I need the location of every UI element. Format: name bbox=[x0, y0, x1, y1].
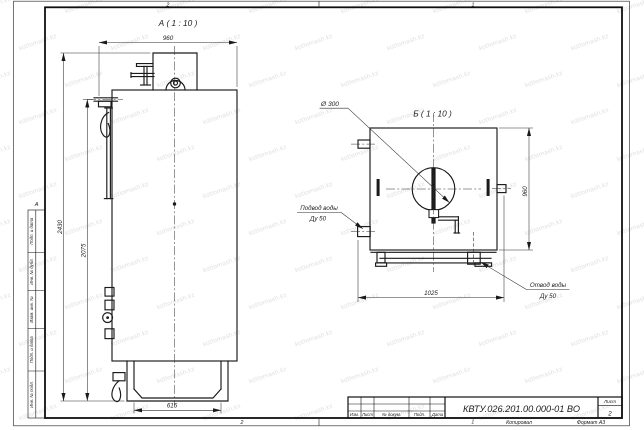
view-a-side-view: А ( 1 : 10 ) bbox=[57, 18, 237, 414]
inlet-label: Подвод воды bbox=[300, 205, 338, 212]
view-a-title: А ( 1 : 10 ) bbox=[158, 18, 198, 28]
drawing-sheet: { "sheet": { "zones": { "top_left": "2",… bbox=[0, 0, 644, 430]
sheet-frame: 2 1 2 1 А Копировал Формат А3 bbox=[14, 1, 630, 426]
zone-letter-left: А bbox=[34, 202, 39, 208]
slot-right bbox=[487, 179, 490, 196]
outlet-size: Ду 50 bbox=[539, 293, 557, 300]
outlet-callout: Отвод воды Ду 50 bbox=[481, 262, 570, 300]
lifting-eye-ring bbox=[171, 78, 181, 88]
view-b-rear-view: Б ( 1 : 10 ) bbox=[297, 101, 569, 302]
titleblock-col-list: Лист bbox=[361, 412, 373, 417]
dim-text-615: 615 bbox=[167, 403, 178, 410]
dim-text-2075: 2075 bbox=[81, 243, 88, 258]
diameter-label: Ø 300 bbox=[320, 101, 339, 108]
document-number: КВТУ.026.201.00.000-01 ВО bbox=[463, 404, 580, 414]
titleblock-col-podp: Подп. bbox=[414, 412, 425, 417]
slot-left bbox=[377, 179, 380, 196]
crank-handle bbox=[439, 217, 460, 233]
sheet-number: 2 bbox=[607, 410, 612, 417]
titleblock-col-izm: Изм. bbox=[350, 412, 359, 417]
damper-handle bbox=[131, 64, 154, 85]
title-block: Изм. Лист № докум. Подп. Дата КВТУ.026.2… bbox=[348, 397, 622, 418]
side-stamp-label: Инв. № дубл. bbox=[29, 258, 34, 284]
zone-number-bottom-left: 2 bbox=[240, 420, 244, 426]
view-b-title: Б ( 1 : 10 ) bbox=[413, 109, 452, 119]
damper-clamp bbox=[429, 210, 439, 218]
inlet-callout: Подвод воды Ду 50 bbox=[297, 205, 363, 229]
dimension-960-top: 960 bbox=[99, 35, 237, 96]
dimension-2075: 2075 bbox=[81, 99, 93, 401]
dim-text-960-b: 960 bbox=[522, 186, 529, 197]
titleblock-col-data: Дата bbox=[431, 412, 444, 417]
dimension-2430: 2430 bbox=[57, 53, 151, 401]
zone-number-bottom-right: 1 bbox=[471, 420, 474, 426]
side-stamp: Подп. и дата Инв. № дубл. Взам. инв. № П… bbox=[28, 210, 45, 418]
base-outline bbox=[127, 361, 228, 401]
sheet-label: Лист bbox=[603, 399, 616, 404]
dim-text-1025: 1025 bbox=[424, 290, 438, 297]
center-mark bbox=[173, 202, 176, 205]
ash-door-latch bbox=[112, 373, 125, 402]
zone-number-top-left: 2 bbox=[166, 2, 170, 8]
side-rod bbox=[101, 108, 113, 199]
side-stamp-label: Подп. и дата bbox=[29, 336, 34, 364]
side-stamp-label: Подп. и дата bbox=[29, 217, 34, 245]
side-stamp-label: Инв. № подл. bbox=[29, 381, 34, 408]
copied-label: Копировал bbox=[506, 420, 532, 426]
format-label: Формат А3 bbox=[577, 420, 605, 426]
zone-number-top-right: 1 bbox=[472, 2, 475, 8]
dim-text-960: 960 bbox=[163, 35, 174, 42]
outlet-label: Отвод воды bbox=[530, 282, 567, 289]
dim-text-2430: 2430 bbox=[57, 220, 64, 235]
engineering-drawing: 2 1 2 1 А Копировал Формат А3 Подп. и да… bbox=[0, 0, 644, 430]
dimension-615: 615 bbox=[134, 403, 221, 414]
titleblock-col-docnum: № докум. bbox=[382, 412, 401, 417]
inlet-size: Ду 50 bbox=[309, 215, 327, 222]
side-stamp-label: Взам. инв. № bbox=[29, 296, 34, 323]
